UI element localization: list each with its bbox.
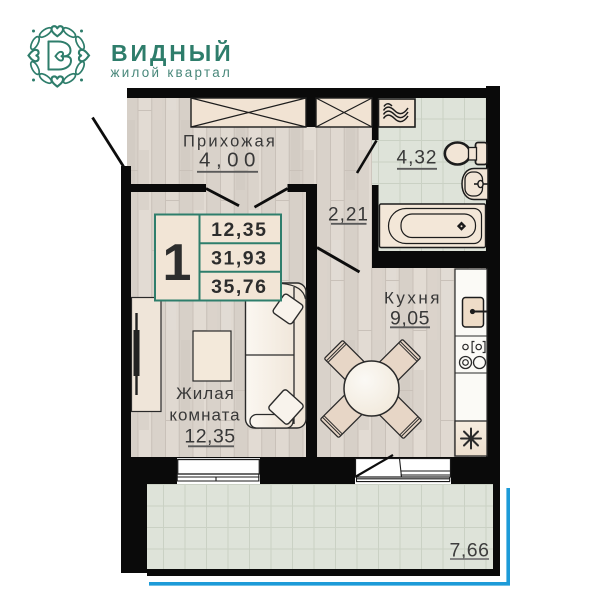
svg-text:Кухня: Кухня [384, 289, 442, 308]
svg-text:1: 1 [163, 234, 192, 292]
svg-text:31,93: 31,93 [211, 247, 267, 269]
svg-text:комната: комната [169, 406, 240, 425]
svg-text:12,35: 12,35 [184, 426, 235, 448]
svg-text:4,32: 4,32 [397, 148, 438, 169]
svg-text:4,00: 4,00 [199, 149, 261, 172]
svg-text:жилой квартал: жилой квартал [111, 65, 233, 80]
svg-text:Жилая: Жилая [176, 384, 235, 403]
svg-text:ВИДНЫЙ: ВИДНЫЙ [111, 39, 234, 66]
svg-text:9,05: 9,05 [390, 307, 430, 329]
svg-text:12,35: 12,35 [211, 219, 267, 241]
svg-text:35,76: 35,76 [211, 276, 267, 298]
svg-text:2,21: 2,21 [328, 205, 369, 226]
